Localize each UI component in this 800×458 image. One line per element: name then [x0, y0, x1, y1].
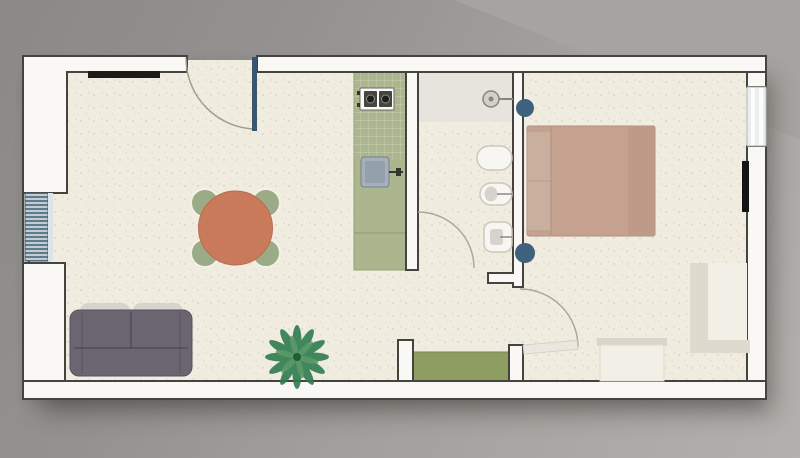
green-mat	[413, 352, 509, 381]
wall-stub-right	[509, 345, 523, 381]
dining-table	[199, 191, 273, 265]
wall-bottom	[23, 381, 766, 399]
entrance-door-leaf	[252, 57, 257, 131]
radiator-living	[25, 193, 53, 261]
wall-left-lower	[23, 263, 65, 381]
nightstand-top	[516, 99, 534, 117]
double-bed	[527, 126, 655, 236]
wall-right-upper	[747, 72, 766, 87]
bed-blanket-fold	[628, 127, 654, 235]
nightstand-bottom	[515, 243, 535, 263]
washbasin	[477, 146, 512, 170]
wall-stub-left	[398, 340, 413, 381]
wall-kitchen-divider	[406, 72, 418, 270]
dining-set	[191, 189, 280, 267]
wall-top-right	[257, 56, 766, 72]
window	[747, 87, 766, 146]
bidet	[480, 183, 512, 205]
dresser	[597, 338, 667, 381]
toilet	[484, 222, 512, 252]
cooktop	[357, 88, 394, 110]
radiator-bedroom	[742, 161, 749, 212]
desk	[690, 263, 750, 353]
wall-cabinet	[88, 71, 160, 78]
floor-plan-drawing	[0, 0, 800, 458]
sofa	[70, 303, 192, 376]
floor-plan-image	[0, 0, 800, 458]
